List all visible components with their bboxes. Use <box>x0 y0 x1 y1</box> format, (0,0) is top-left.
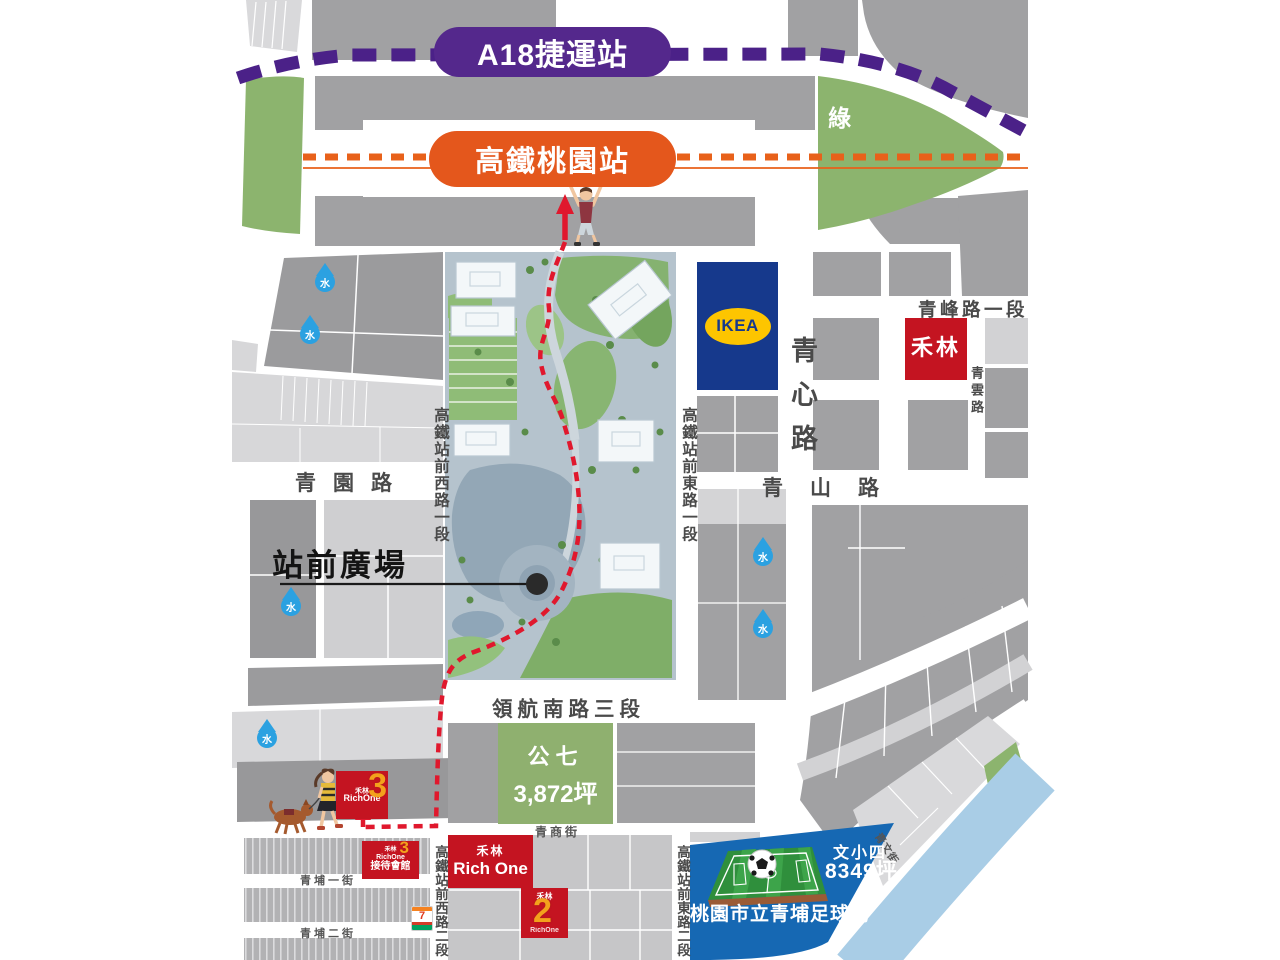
water-drop-label: 水 <box>286 599 296 614</box>
school-zone-area: 8349坪 <box>825 855 898 885</box>
ikea-store-box: IKEA <box>697 262 778 390</box>
water-drop-icon: 水 <box>257 728 277 748</box>
road-label-qingpu-2: 青埔二街 <box>300 925 356 941</box>
seven-logo-number: 7 <box>412 911 432 922</box>
location-map: A18捷運站 高鐵桃園站 綠 IKEA 禾林 青園路 青山路 青峰路一段 領航南… <box>0 0 1280 960</box>
reception-label: 接待會館 <box>371 862 411 873</box>
water-drop-label: 水 <box>758 549 768 564</box>
road-label-qingxin: 青心路 <box>783 336 822 468</box>
road-label-qingyuan: 青園路 <box>295 467 409 497</box>
park7-name: 公七 <box>527 739 583 771</box>
road-label-qingshang: 青商街 <box>535 823 580 840</box>
richone-brand: 禾林 <box>476 845 504 858</box>
plaza-label: 站前廣場 <box>272 540 408 585</box>
water-drop-icon: 水 <box>315 272 335 292</box>
road-label-hsr-west-2: 高鐵站前西路二段 <box>430 845 450 957</box>
water-drop-label: 水 <box>305 327 315 342</box>
road-label-hsr-east-1: 高鐵站前東路一段 <box>677 407 699 543</box>
road-label-hsr-west-1: 高鐵站前西路一段 <box>429 407 451 543</box>
richone3-number: 3 <box>368 769 387 805</box>
ikea-logo-oval: IKEA <box>705 308 771 345</box>
mrt-station-pill: A18捷運站 <box>434 27 671 77</box>
holin-landmark-box: 禾林 <box>905 318 967 380</box>
central-park-aerial <box>445 252 681 680</box>
road-label-hsr-east-2: 高鐵站前東路二段 <box>672 845 692 957</box>
water-drop-icon: 水 <box>753 546 773 566</box>
water-drop-label: 水 <box>262 731 272 746</box>
richone-2-building-box: 禾林 2 RichOne <box>521 888 568 938</box>
hsr-station-pill: 高鐵桃園站 <box>429 131 676 187</box>
park7-area: 3,872坪 <box>513 774 597 809</box>
richone-name: Rich One <box>453 860 528 878</box>
road-label-linghang-south-3: 領航南路三段 <box>492 692 645 722</box>
richone3-reception-box: 禾林 RichOne 3 接待會館 <box>362 841 419 879</box>
road-label-qingpu-1: 青埔一街 <box>300 872 356 888</box>
richone2-number: 2 <box>533 894 552 930</box>
water-drop-icon: 水 <box>281 596 301 616</box>
water-drop-label: 水 <box>758 621 768 636</box>
ikea-logo-text: IKEA <box>716 316 759 336</box>
water-drop-icon: 水 <box>300 324 320 344</box>
water-drop-icon: 水 <box>753 618 773 638</box>
park7-zone: 公七 3,872坪 <box>498 723 613 824</box>
water-drop-label: 水 <box>320 275 330 290</box>
richone-main-box: 禾林 Rich One <box>448 835 533 888</box>
road-label-qingshan: 青山路 <box>762 472 906 502</box>
road-label-qingyun: 青雲路 <box>967 366 986 417</box>
richone2-name: RichOne <box>530 927 559 934</box>
stadium-label: 桃園市立青埔足球場 <box>690 899 870 926</box>
richone-3-building-box: 禾林 RichOne 3 <box>336 771 388 819</box>
reception-number: 3 <box>400 839 409 857</box>
seven-green-bar <box>412 925 432 930</box>
soccer-ball-icon <box>748 850 776 878</box>
road-label-qingfeng-1: 青峰路一段 <box>918 296 1028 322</box>
green-area-label: 綠 <box>828 99 851 133</box>
seven-eleven-icon: 7 <box>411 906 433 931</box>
